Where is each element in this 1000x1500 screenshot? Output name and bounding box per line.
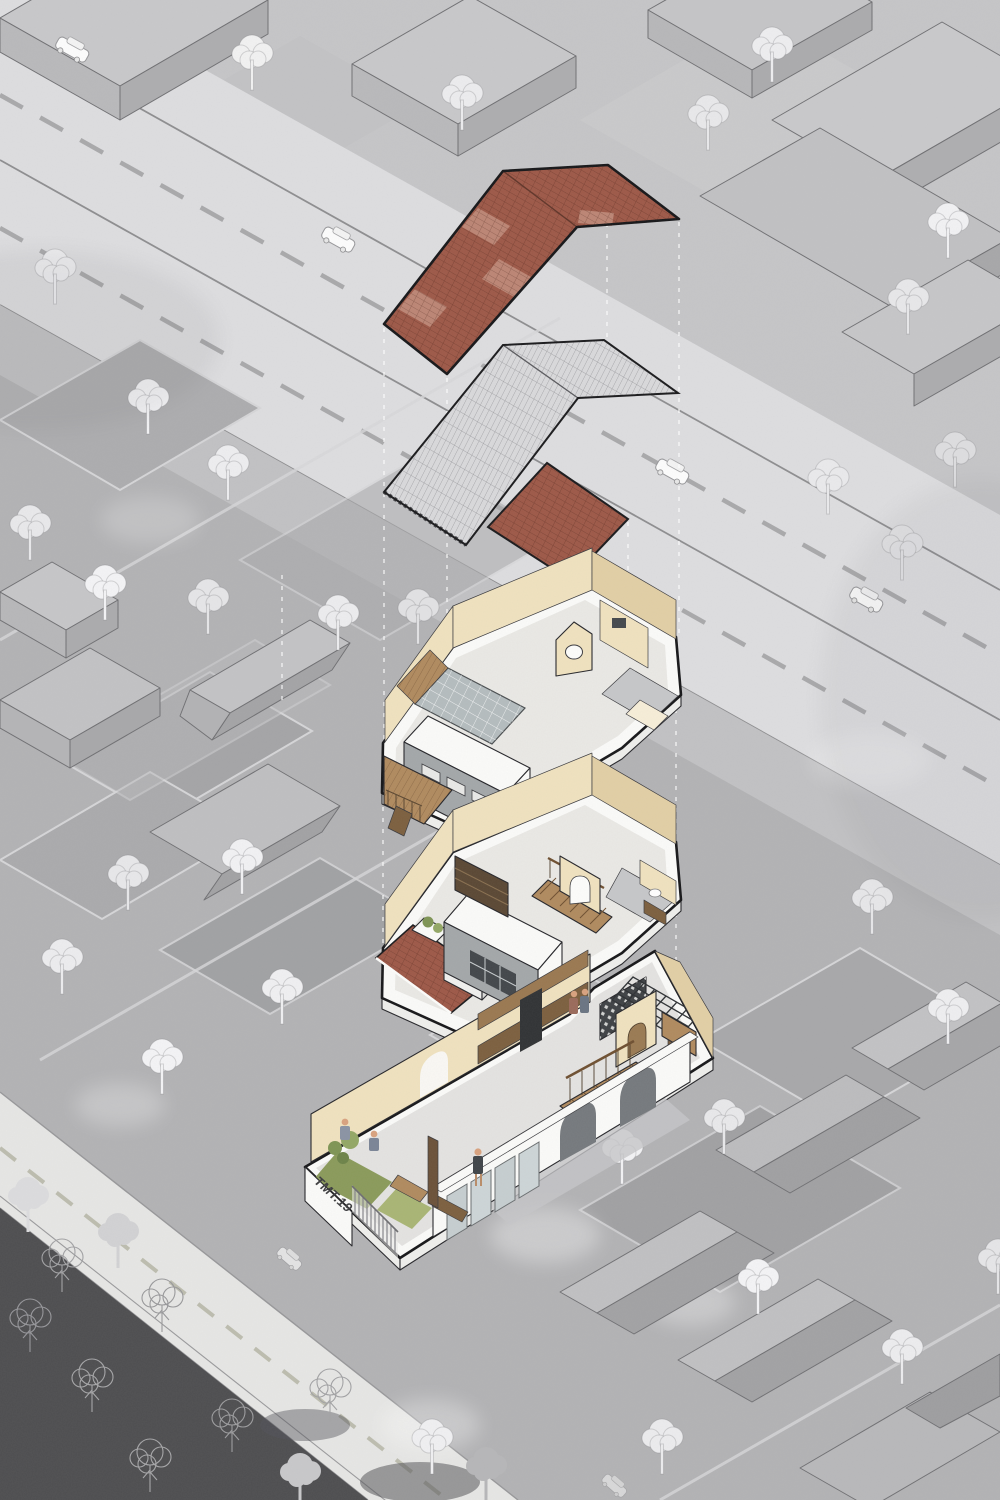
diagram-canvas: TMT.19 — [0, 0, 1000, 1500]
diagram-page: TMT.19 — [0, 0, 1000, 1500]
paper-noise — [0, 0, 1000, 1500]
atmosphere-overlays — [0, 0, 1000, 1500]
